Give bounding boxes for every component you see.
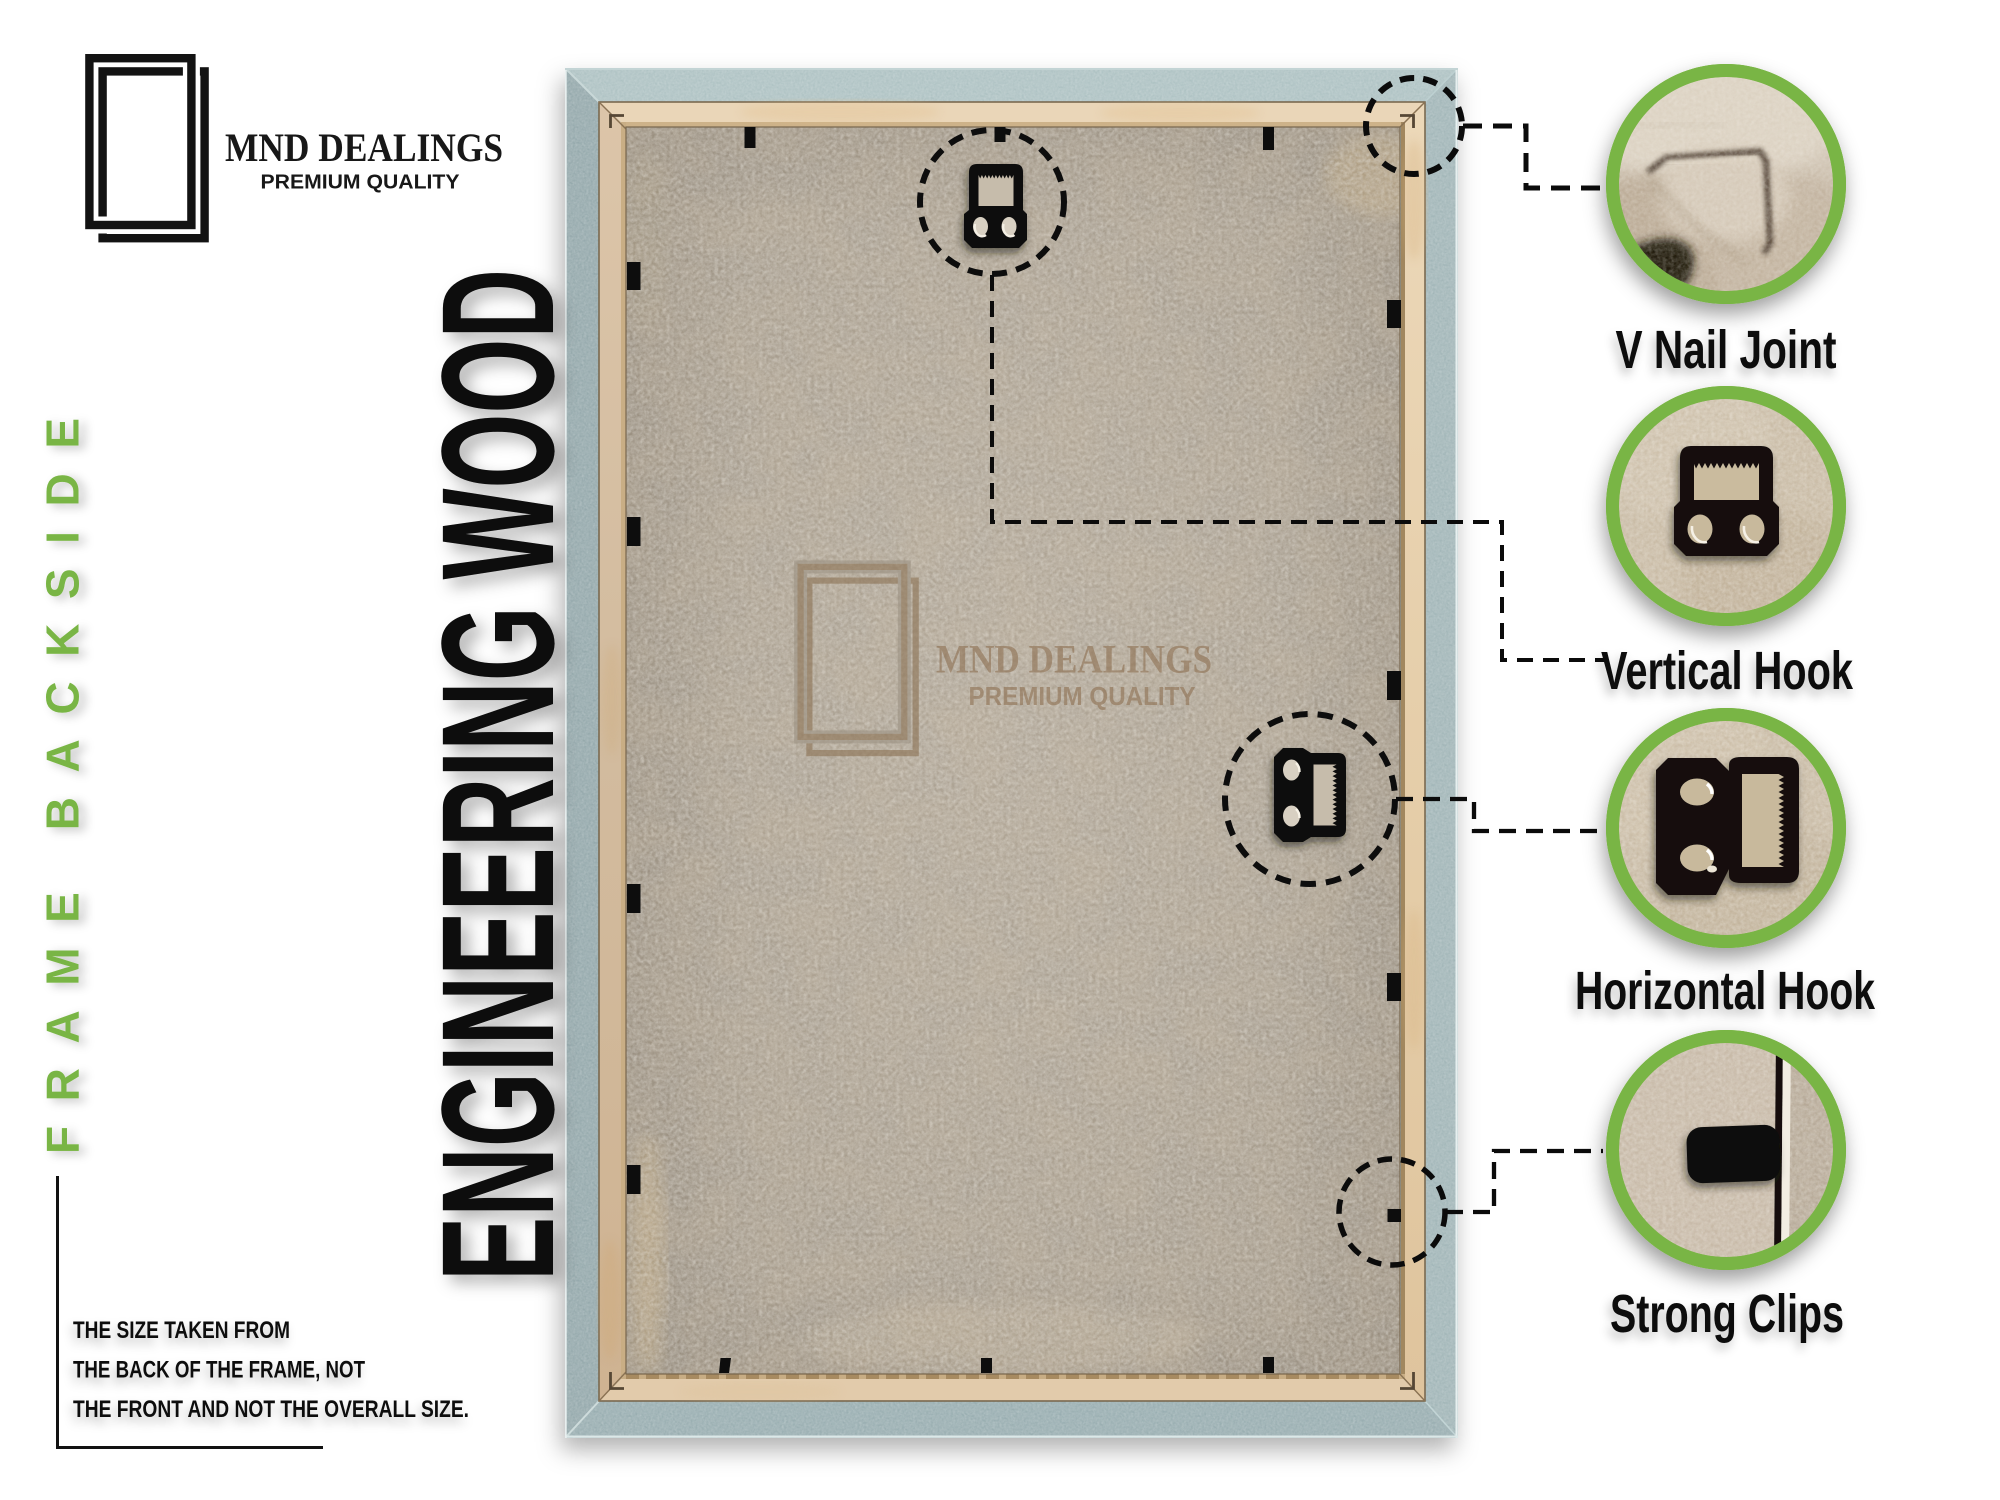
svg-text:THE BACK OF THE FRAME, NOT: THE BACK OF THE FRAME, NOT <box>73 1357 365 1384</box>
svg-text:MND DEALINGS: MND DEALINGS <box>936 637 1212 682</box>
svg-text:Vertical Hook: Vertical Hook <box>1601 641 1854 701</box>
svg-text:THE FRONT AND NOT THE OVERALL: THE FRONT AND NOT THE OVERALL SIZE. <box>73 1396 469 1423</box>
svg-text:V Nail Joint: V Nail Joint <box>1616 320 1837 380</box>
svg-text:Strong Clips: Strong Clips <box>1610 1284 1844 1344</box>
svg-text:ENGINEERING WOOD: ENGINEERING WOOD <box>408 269 587 1281</box>
svg-text:THE SIZE TAKEN FROM: THE SIZE TAKEN FROM <box>73 1317 290 1344</box>
svg-text:MND DEALINGS: MND DEALINGS <box>225 125 503 170</box>
svg-text:PREMIUM QUALITY: PREMIUM QUALITY <box>969 681 1196 711</box>
svg-text:Horizontal Hook: Horizontal Hook <box>1575 961 1876 1021</box>
svg-text:PREMIUM QUALITY: PREMIUM QUALITY <box>261 171 460 194</box>
